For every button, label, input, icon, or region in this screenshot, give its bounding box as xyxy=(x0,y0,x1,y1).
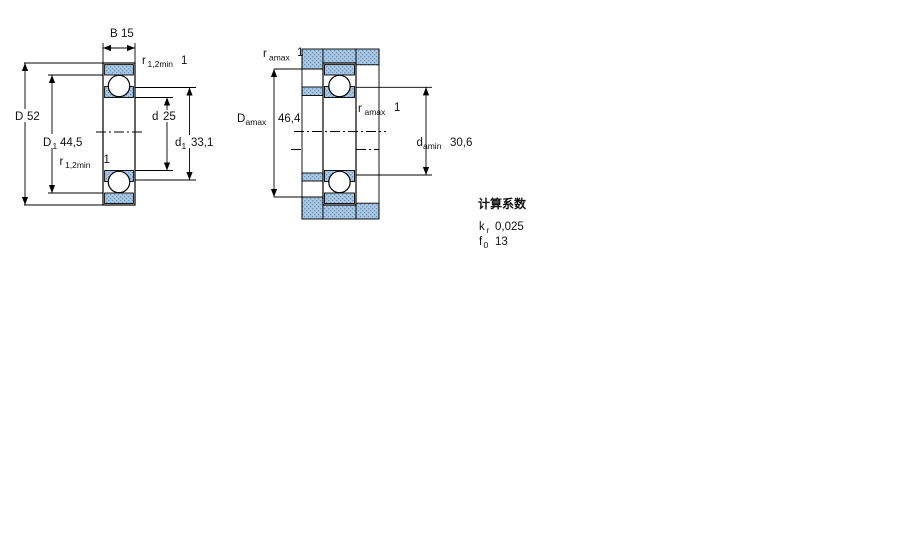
dim-r-bottom-value: 1 xyxy=(104,154,110,166)
outer-ring-bottom-band xyxy=(105,193,134,204)
dim-r-bottom-subscript: 1,2min xyxy=(65,160,91,170)
dim-D1-symbol: D xyxy=(43,137,51,149)
outer-ring-top-band xyxy=(325,65,355,75)
housing-top-right xyxy=(356,49,379,65)
dim-d1-symbol: d xyxy=(175,137,181,149)
drawing-svg: B 15 r 1,2min 1 D 52 D 1 44,5 r 1,2min 1… xyxy=(0,0,900,560)
ball-top xyxy=(108,75,129,96)
ball-bottom xyxy=(329,171,350,192)
dim-ra-mid-value: 1 xyxy=(394,102,400,114)
factor-f0-subscript: 0 xyxy=(484,240,489,250)
outer-ring-bottom-band xyxy=(325,193,355,204)
dim-damin-symbol: d xyxy=(417,137,423,149)
dim-B-value: 15 xyxy=(121,28,134,40)
housing-top-left xyxy=(302,49,323,69)
outer-ring-top-band xyxy=(105,65,134,75)
factor-kr-subscript: r xyxy=(487,225,490,235)
housing-bottom-center xyxy=(323,205,356,219)
shoulder-upper-left xyxy=(302,87,323,96)
ball-top xyxy=(329,75,350,96)
dim-D-value: 52 xyxy=(27,111,40,123)
dim-r-top-symbol: r xyxy=(142,55,146,67)
dim-damin-subscript: amin xyxy=(423,141,442,151)
dim-d1-value: 33,1 xyxy=(191,137,213,149)
dim-d-symbol: d xyxy=(152,111,158,123)
housing-bottom-left xyxy=(302,197,323,219)
housing-bottom-right xyxy=(356,203,379,219)
dim-ra-top-subscript: amax xyxy=(269,53,291,63)
housing-top-center xyxy=(323,49,356,63)
dim-r-top-value: 1 xyxy=(181,55,187,67)
dim-damin-value: 30,6 xyxy=(450,137,472,149)
dim-Damax-symbol: D xyxy=(237,113,245,125)
bearing-dimension-drawing-page: B 15 r 1,2min 1 D 52 D 1 44,5 r 1,2min 1… xyxy=(0,0,900,560)
dim-ra-top-value: 1 xyxy=(297,47,303,59)
dim-B-symbol: B xyxy=(110,28,118,40)
dim-ra-mid-subscript: amax xyxy=(365,107,387,117)
dim-D-symbol: D xyxy=(15,111,23,123)
factor-kr-value: 0,025 xyxy=(495,221,524,233)
dim-d1-subscript: 1 xyxy=(182,141,187,151)
factor-kr-symbol: k xyxy=(479,221,485,233)
ball-bottom xyxy=(108,171,129,192)
dim-d-value: 25 xyxy=(163,111,176,123)
factors-title: 计算系数 xyxy=(478,196,527,211)
dim-ra-top-symbol: r xyxy=(263,48,267,60)
dim-D1-subscript: 1 xyxy=(53,141,58,151)
dim-ra-mid-symbol: r xyxy=(358,103,362,115)
factor-f0-value: 13 xyxy=(495,236,508,248)
dim-Damax-subscript: amax xyxy=(246,117,268,127)
dim-r-bottom-symbol: r xyxy=(60,156,64,168)
dim-r-top-subscript: 1,2min xyxy=(148,59,174,69)
dim-Damax-value: 46,4 xyxy=(278,113,301,125)
shoulder-lower-left xyxy=(302,173,323,181)
dim-D1-value: 44,5 xyxy=(60,137,82,149)
